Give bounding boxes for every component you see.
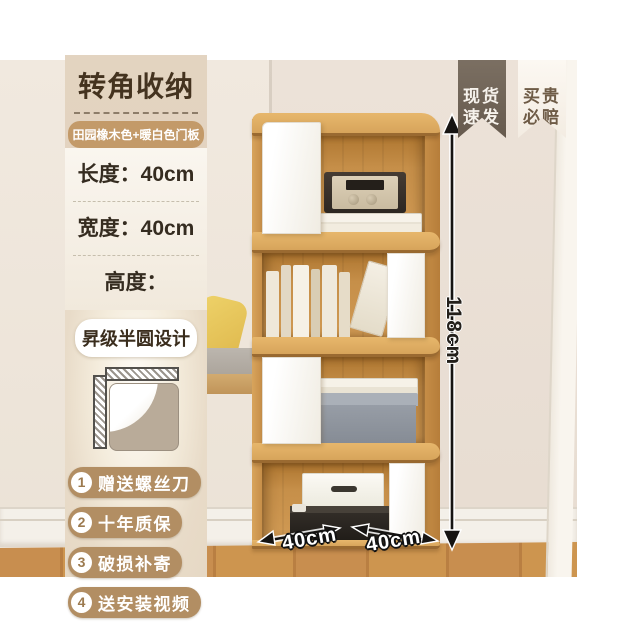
specs-card: 长度：40cm 宽度：40cm 高度：118cm bbox=[65, 148, 207, 310]
feature-label: 破损补寄 bbox=[98, 550, 172, 575]
feature-label: 赠送螺丝刀 bbox=[98, 470, 191, 495]
height-label: 118cm bbox=[441, 296, 465, 365]
product-card: 40cm 40cm 118cm 现货 速发 买贵 必赔 转角收纳 田园橡木色+暖… bbox=[0, 0, 640, 640]
wall-hatch-top bbox=[105, 367, 179, 381]
spec-label: 长度： bbox=[78, 163, 141, 186]
rounded-corner-shape bbox=[109, 383, 179, 451]
design-card: 昇级半圆设计 1 赠送螺丝刀 2 十年质保 3 破损补 bbox=[65, 310, 207, 577]
feature-number: 4 bbox=[71, 592, 92, 613]
spec-value: 40cm bbox=[141, 163, 195, 186]
spec-label: 高度： bbox=[105, 271, 168, 294]
feature-list: 1 赠送螺丝刀 2 十年质保 3 破损补寄 4 送安装视频 bbox=[65, 467, 207, 618]
feature-item: 2 十年质保 bbox=[68, 507, 182, 538]
corner-design-illustration bbox=[65, 365, 207, 461]
quarter-circle-highlight bbox=[109, 383, 158, 432]
spec-label: 宽度： bbox=[78, 217, 141, 240]
spec-width: 宽度：40cm bbox=[73, 202, 199, 256]
dashed-divider bbox=[74, 112, 198, 114]
feature-number: 3 bbox=[71, 552, 92, 573]
feature-label: 十年质保 bbox=[98, 510, 172, 535]
color-option-badge: 田园橡木色+暖白色门板 bbox=[68, 121, 204, 148]
ribbon-line: 现货 bbox=[458, 86, 506, 107]
feature-number: 1 bbox=[71, 472, 92, 493]
design-badge: 昇级半圆设计 bbox=[75, 319, 197, 357]
spec-value: 40cm bbox=[141, 217, 195, 240]
product-title: 转角收纳 bbox=[65, 65, 207, 105]
feature-label: 送安装视频 bbox=[98, 590, 191, 615]
title-card: 转角收纳 田园橡木色+暖白色门板 bbox=[65, 55, 207, 148]
info-panel: 转角收纳 田园橡木色+暖白色门板 长度：40cm 宽度：40cm 高度：118c… bbox=[65, 55, 207, 577]
feature-number: 2 bbox=[71, 512, 92, 533]
ribbon-line: 买贵 bbox=[518, 86, 566, 107]
wall-hatch-left bbox=[93, 375, 107, 449]
spec-height: 高度：118cm bbox=[73, 256, 199, 310]
feature-item: 3 破损补寄 bbox=[68, 547, 182, 578]
feature-item: 4 送安装视频 bbox=[68, 587, 201, 618]
feature-item: 1 赠送螺丝刀 bbox=[68, 467, 201, 498]
spec-length: 长度：40cm bbox=[73, 148, 199, 202]
